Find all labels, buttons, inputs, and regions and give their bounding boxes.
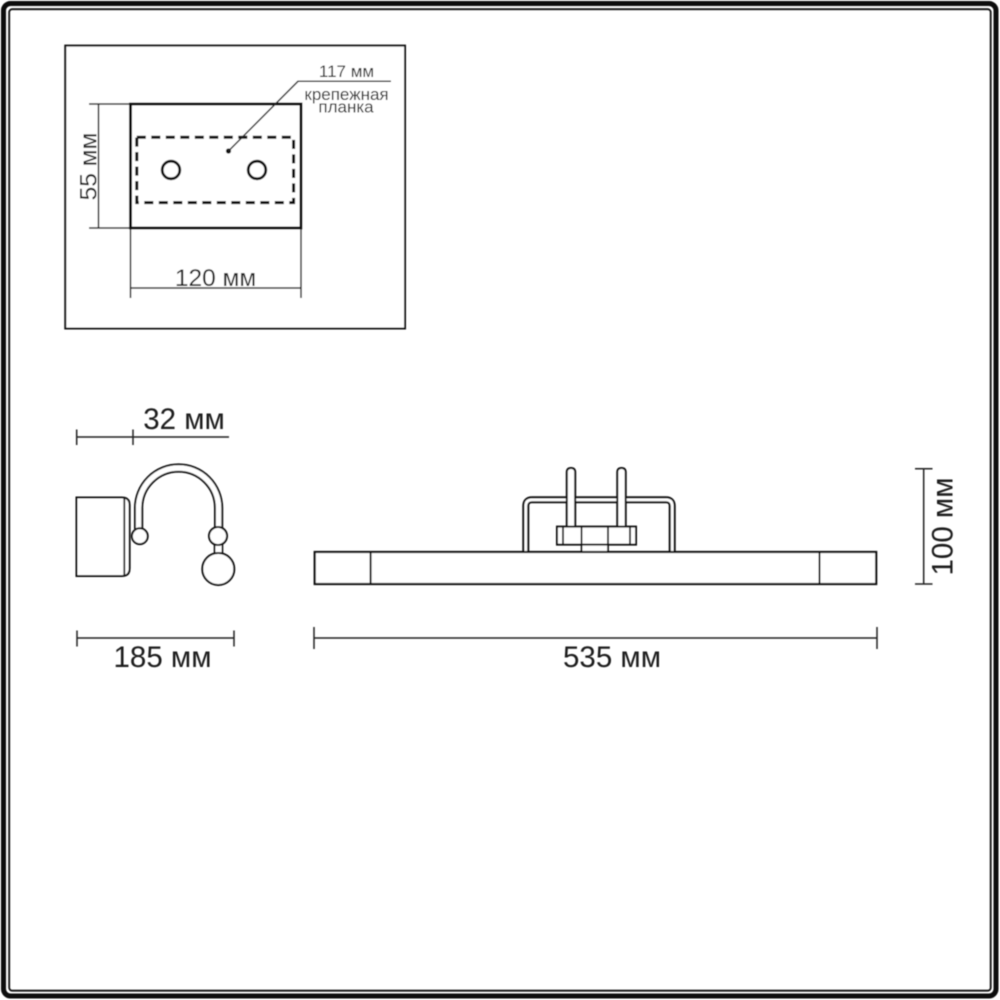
svg-text:55 мм: 55 мм (76, 133, 103, 201)
svg-text:185 мм: 185 мм (114, 641, 212, 674)
svg-text:32 мм: 32 мм (143, 403, 225, 436)
svg-text:117 мм: 117 мм (319, 62, 374, 81)
svg-text:120 мм: 120 мм (175, 265, 256, 292)
svg-text:535 мм: 535 мм (563, 641, 661, 674)
svg-text:100 мм: 100 мм (927, 478, 960, 576)
svg-text:планка: планка (318, 98, 374, 117)
